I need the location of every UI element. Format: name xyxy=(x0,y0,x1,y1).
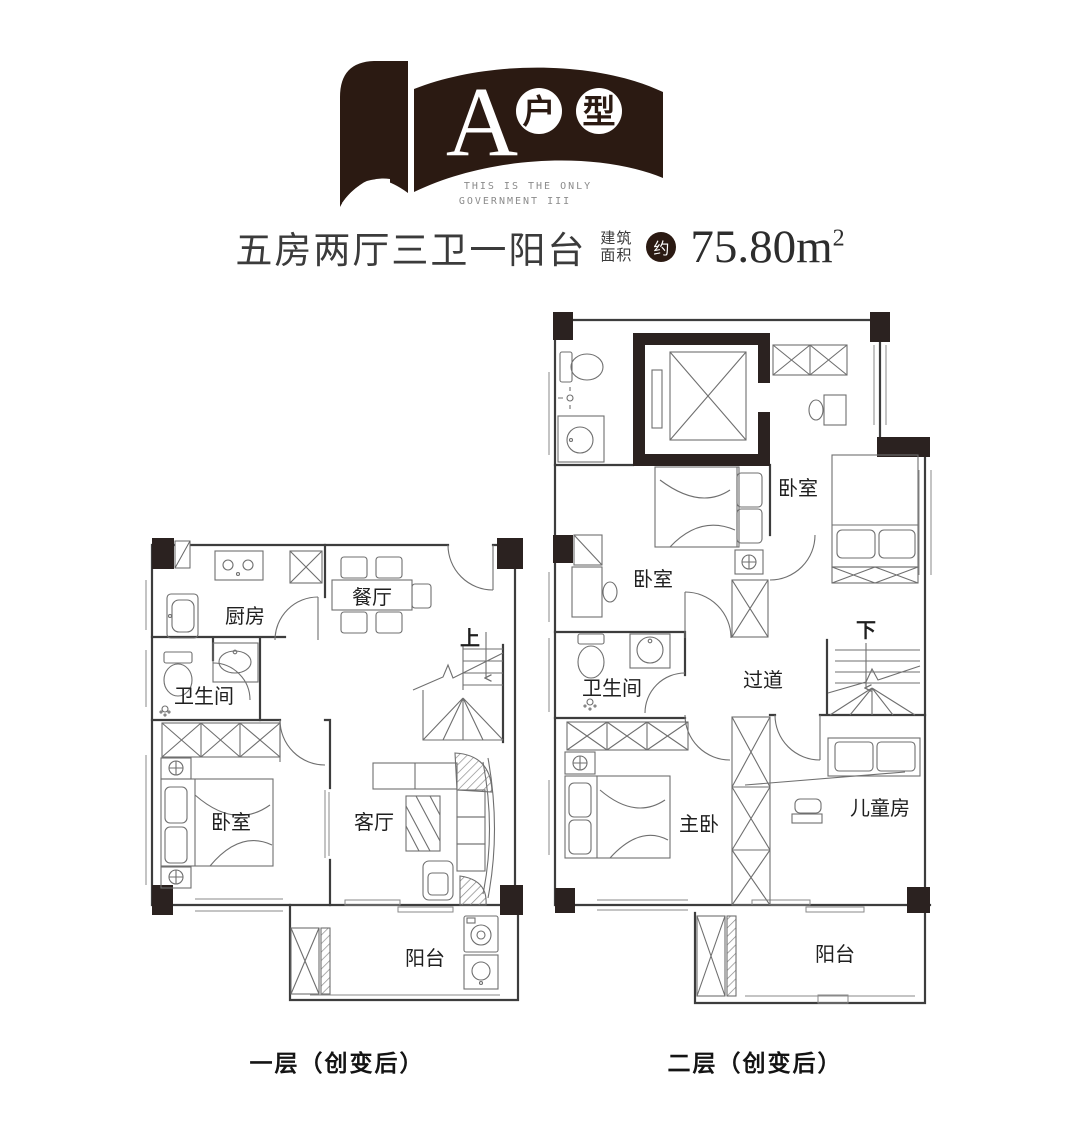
room-label-master: 主卧 xyxy=(679,813,719,836)
elevator-shaft xyxy=(633,333,770,466)
armchair xyxy=(423,861,453,900)
room-label-hallway: 过道 xyxy=(743,669,783,692)
flue-shaft xyxy=(290,551,322,583)
logo-char-xing: 型 xyxy=(583,93,616,130)
stove-icon xyxy=(215,551,263,580)
bed-bedroom-left xyxy=(655,467,763,574)
room-label-bedroom: 卧室 xyxy=(211,811,251,834)
area-label-bottom: 面积 xyxy=(600,247,632,264)
room-label-balcony: 阳台 xyxy=(405,947,445,970)
tv-cabinet xyxy=(406,796,440,851)
cabinet-bedroom-left xyxy=(572,535,617,617)
stairs-down-label: 下 xyxy=(856,620,876,642)
closet-divider xyxy=(732,717,770,905)
room-label-dining: 餐厅 xyxy=(352,586,392,609)
brand-logo: A 户 型 THIS IS THE ONLY GOVERNMENT III xyxy=(330,55,664,217)
floorplan-second-floor: 卧室 卧室 卫生间 过道 主卧 儿童房 阳台 下 xyxy=(545,300,940,1015)
entry-door xyxy=(448,545,493,590)
room-label-bedroom-right: 卧室 xyxy=(778,477,818,500)
area-sup: 2 xyxy=(833,225,845,251)
approx-badge: 约 xyxy=(646,232,676,262)
bath2-door xyxy=(645,673,685,713)
kids-door xyxy=(775,715,820,760)
floor2-caption: 二层（创变后） xyxy=(605,1044,905,1078)
master-door xyxy=(685,715,730,760)
closet-corridor xyxy=(732,580,768,637)
room-label-living: 客厅 xyxy=(354,811,394,834)
room-label-bedroom-left: 卧室 xyxy=(633,568,673,591)
room-label-bath: 卫生间 xyxy=(174,685,234,708)
bed-master xyxy=(565,752,670,858)
area-label: 建筑 面积 xyxy=(600,230,632,264)
area-label-top: 建筑 xyxy=(600,230,632,247)
stool-kids xyxy=(792,799,822,823)
logo-char-hu: 户 xyxy=(523,93,556,130)
logo-tagline-line1: THIS IS THE ONLY xyxy=(464,181,592,192)
logo-scroll-shape xyxy=(340,61,408,207)
bed-kids xyxy=(745,738,920,785)
upper-bath-fixtures xyxy=(558,352,604,462)
balcony-sink-icon xyxy=(464,955,498,989)
layout-text: 五房两厅三卫一阳台 xyxy=(235,220,586,274)
area-value: 75.80m2 xyxy=(690,220,844,274)
room-label-kitchen: 厨房 xyxy=(225,605,265,628)
kitchen-door xyxy=(275,597,318,640)
stairs-up-label: 上 xyxy=(460,627,480,650)
balcony-shaft xyxy=(697,916,736,996)
subtitle-row: 五房两厅三卫一阳台 建筑 面积 约 75.80m2 xyxy=(0,220,1080,274)
stairs-up xyxy=(413,632,503,740)
desk-bedroom-right xyxy=(809,395,846,425)
floorplan-first-floor: 厨房 餐厅 卫生间 卧室 客厅 阳台 上 xyxy=(140,525,535,1020)
room-label-kids: 儿童房 xyxy=(850,797,910,820)
room-label-bath2: 卫生间 xyxy=(582,677,642,700)
bath-sink-icon xyxy=(213,643,258,682)
wardrobe-bedroom-right xyxy=(773,345,847,375)
floor-drain-icon xyxy=(160,706,170,716)
room-label-balcony2: 阳台 xyxy=(815,943,855,966)
bedroom-right-door xyxy=(770,535,815,580)
logo-tagline-line2: GOVERNMENT III xyxy=(459,196,571,207)
wardrobe-master xyxy=(567,722,688,750)
logo-letter: A xyxy=(446,66,518,177)
balcony-shaft xyxy=(291,928,330,994)
bed-bedroom-right xyxy=(832,455,918,583)
stairs-down xyxy=(828,643,920,715)
kitchen-sink-icon xyxy=(167,594,198,638)
bedroom-door xyxy=(280,720,325,765)
bedroom-left-door xyxy=(685,592,731,638)
floor1-caption: 一层（创变后） xyxy=(187,1044,487,1078)
wardrobe xyxy=(162,723,280,757)
washing-machine-icon xyxy=(464,916,498,952)
structural-columns xyxy=(553,312,930,913)
